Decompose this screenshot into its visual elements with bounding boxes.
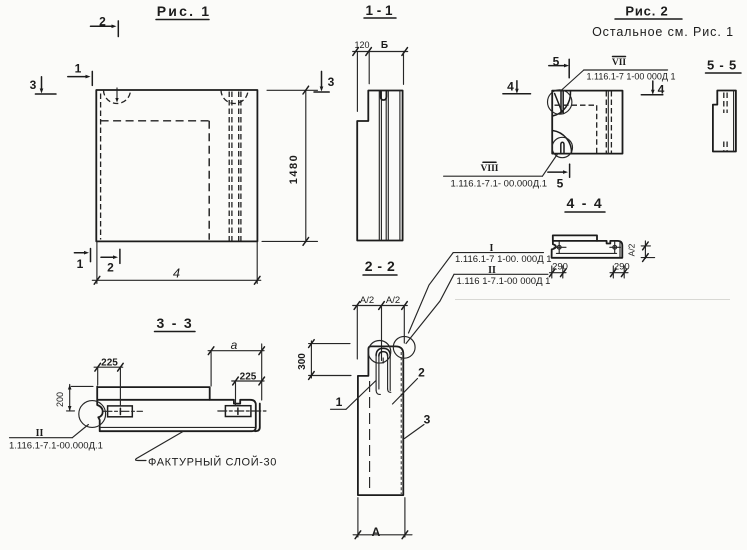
svg-text:4: 4 (507, 80, 514, 94)
svg-text:290: 290 (614, 262, 630, 273)
svg-text:4: 4 (173, 266, 180, 281)
svg-text:2: 2 (418, 366, 425, 380)
svg-text:1.116 1-7.1-00 000Д 1: 1.116 1-7.1-00 000Д 1 (457, 276, 551, 287)
svg-text:1: 1 (75, 62, 82, 76)
svg-text:1: 1 (336, 395, 343, 409)
svg-text:А: А (372, 525, 381, 539)
svg-text:А/2: А/2 (627, 243, 637, 256)
svg-text:1480: 1480 (288, 154, 300, 184)
svg-text:1.116.1-7.1-00.000Д.1: 1.116.1-7.1-00.000Д.1 (9, 441, 103, 452)
svg-text:300: 300 (297, 353, 308, 370)
svg-text:Б: Б (381, 40, 388, 51)
svg-text:VII: VII (612, 58, 627, 68)
svg-text:А/2: А/2 (386, 295, 400, 306)
svg-text:1.116.1-7.1- 00.000Д.1: 1.116.1-7.1- 00.000Д.1 (451, 179, 548, 190)
svg-text:1.116.1-7 1-00 000Д 1: 1.116.1-7 1-00 000Д 1 (587, 72, 676, 82)
svg-text:ФАКТУРНЫЙ СЛОЙ-30: ФАКТУРНЫЙ СЛОЙ-30 (148, 456, 277, 469)
svg-text:1: 1 (77, 257, 84, 271)
svg-text:5 - 5: 5 - 5 (707, 58, 737, 73)
svg-text:А/2: А/2 (360, 295, 374, 306)
svg-text:3: 3 (424, 413, 431, 427)
svg-text:120: 120 (354, 40, 369, 50)
svg-text:Остальное см. Рис. 1: Остальное см. Рис. 1 (592, 25, 734, 39)
svg-text:2: 2 (107, 261, 114, 275)
svg-text:225: 225 (240, 372, 257, 383)
svg-text:VIII: VIII (481, 164, 499, 174)
svg-text:2 - 2: 2 - 2 (365, 258, 396, 274)
svg-text:Рис. 1: Рис. 1 (157, 3, 212, 19)
svg-text:3: 3 (328, 75, 335, 89)
svg-text:4 - 4: 4 - 4 (566, 195, 603, 211)
svg-text:а: а (231, 338, 238, 352)
svg-text:1 - 1: 1 - 1 (365, 3, 393, 18)
svg-text:5: 5 (553, 55, 560, 69)
svg-text:1.116.1-7 1-00. 000Д 1: 1.116.1-7 1-00. 000Д 1 (455, 254, 552, 265)
svg-text:3 - 3: 3 - 3 (156, 315, 193, 331)
svg-text:225: 225 (101, 358, 118, 369)
svg-text:200: 200 (55, 392, 65, 407)
svg-text:Рис. 2: Рис. 2 (625, 4, 668, 19)
svg-text:3: 3 (30, 78, 37, 92)
svg-text:5: 5 (557, 177, 564, 191)
